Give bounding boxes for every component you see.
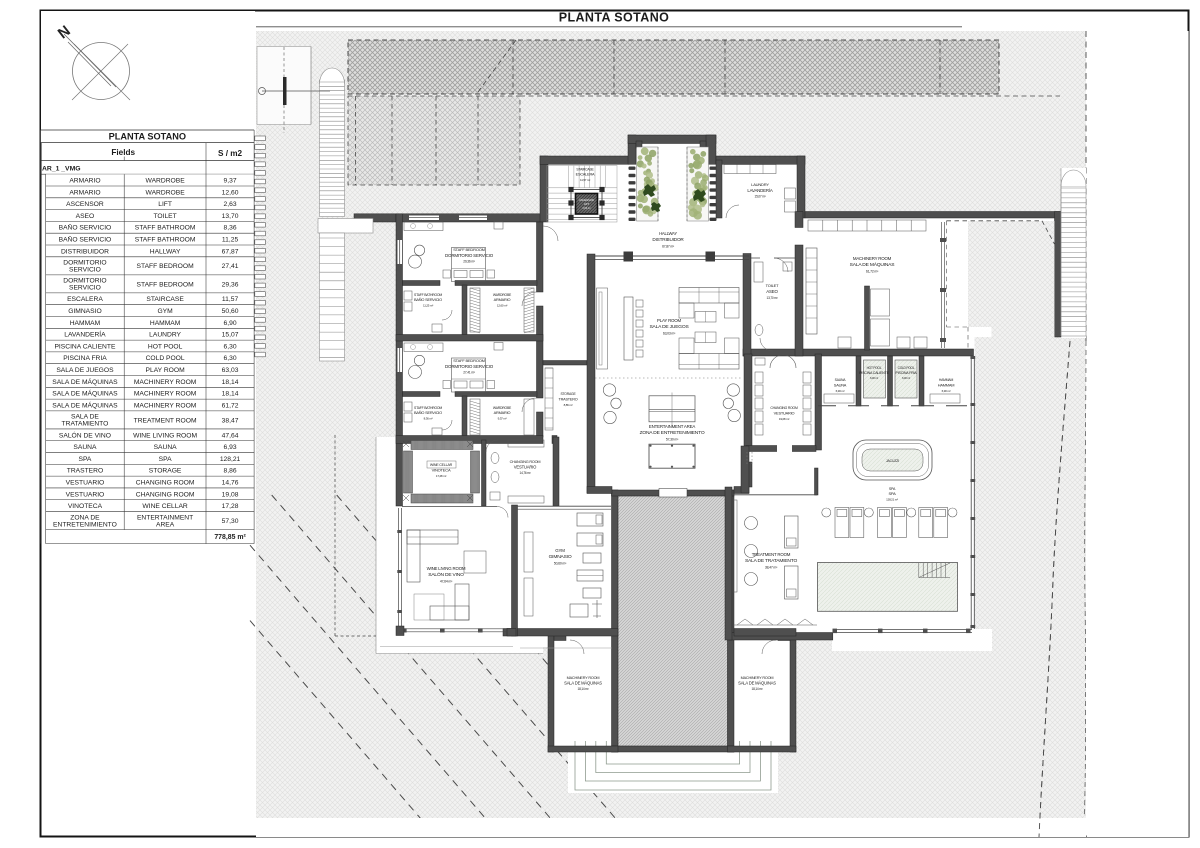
svg-text:STAFF BEDROOM: STAFF BEDROOM	[137, 281, 195, 288]
svg-text:VESTUARIO: VESTUARIO	[66, 479, 105, 486]
svg-text:128,21 m²: 128,21 m²	[886, 497, 898, 501]
svg-text:47,64: 47,64	[222, 432, 239, 439]
svg-text:2,63 m²: 2,63 m²	[582, 207, 590, 210]
svg-text:SALA DE JUEGOS: SALA DE JUEGOS	[56, 367, 114, 374]
svg-text:ESCALERA: ESCALERA	[67, 296, 103, 303]
svg-text:STAIRCASE: STAIRCASE	[146, 296, 184, 303]
svg-text:AR_1 _VMG: AR_1 _VMG	[42, 166, 81, 173]
svg-text:LAUNDRY: LAUNDRY	[149, 332, 181, 339]
svg-text:778,85 m²: 778,85 m²	[214, 534, 246, 541]
svg-text:SAUNA: SAUNA	[73, 444, 97, 451]
svg-text:PISCINA FRIA: PISCINA FRIA	[896, 371, 918, 375]
svg-text:SALA DE MÁQUINAS: SALA DE MÁQUINAS	[738, 680, 776, 685]
svg-text:50,60: 50,60	[222, 308, 239, 315]
svg-text:ASEO: ASEO	[766, 289, 778, 294]
svg-text:19,08 m²: 19,08 m²	[779, 417, 789, 421]
svg-text:PISCINA CALIENTE: PISCINA CALIENTE	[54, 343, 115, 350]
svg-text:11,25: 11,25	[222, 237, 239, 244]
svg-text:6,93: 6,93	[224, 444, 237, 451]
svg-text:COLD POOL: COLD POOL	[146, 355, 185, 362]
svg-text:SAUNA: SAUNA	[835, 378, 847, 382]
svg-text:MACHINERY ROOM: MACHINERY ROOM	[741, 676, 774, 680]
svg-text:SPA: SPA	[159, 456, 172, 463]
svg-text:38,47: 38,47	[222, 417, 239, 424]
svg-text:HALLWAY: HALLWAY	[150, 248, 181, 255]
svg-text:PISCINA CALIENTE: PISCINA CALIENTE	[859, 371, 889, 375]
svg-text:BAÑO SERVICIO: BAÑO SERVICIO	[414, 297, 442, 302]
svg-text:SALA DE: SALA DE	[71, 414, 99, 421]
svg-text:CHANGING ROOM: CHANGING ROOM	[770, 406, 798, 410]
svg-text:DORMITORIO: DORMITORIO	[63, 278, 106, 285]
svg-text:TOILET: TOILET	[153, 213, 176, 220]
svg-text:11,57: 11,57	[222, 296, 239, 303]
svg-text:AREA: AREA	[156, 521, 175, 528]
svg-text:BAÑO SERVICIO: BAÑO SERVICIO	[414, 410, 442, 415]
svg-text:ESCALERA: ESCALERA	[576, 173, 595, 177]
svg-text:6,30: 6,30	[224, 343, 237, 350]
svg-text:12,60 m²: 12,60 m²	[497, 303, 507, 307]
svg-text:SPA: SPA	[888, 491, 896, 496]
svg-text:SALA DE MÁQUINAS: SALA DE MÁQUINAS	[52, 389, 118, 398]
svg-text:STAIRCASE: STAIRCASE	[576, 168, 594, 172]
svg-text:6,30 m²: 6,30 m²	[902, 376, 910, 380]
svg-text:SALÓN DE VINO: SALÓN DE VINO	[428, 571, 464, 578]
svg-text:29,36: 29,36	[222, 281, 239, 288]
svg-text:TREATMENT ROOM: TREATMENT ROOM	[752, 552, 791, 557]
svg-text:VESTUARIO: VESTUARIO	[774, 410, 795, 415]
svg-text:MACHINERY ROOM: MACHINERY ROOM	[134, 391, 197, 398]
svg-text:WINE LIVING ROOM: WINE LIVING ROOM	[133, 432, 197, 439]
svg-text:18,14 m²: 18,14 m²	[752, 687, 763, 691]
svg-text:63,03 m²: 63,03 m²	[663, 331, 676, 335]
svg-text:6,90 m²: 6,90 m²	[942, 389, 951, 393]
svg-text:STORAGE: STORAGE	[149, 468, 182, 475]
svg-text:TRASTERO: TRASTERO	[67, 468, 103, 475]
svg-text:DORMITORIO SERVICIO: DORMITORIO SERVICIO	[445, 364, 494, 369]
svg-text:SALA DE MÁQUINAS: SALA DE MÁQUINAS	[52, 400, 118, 409]
svg-text:13,70 m²: 13,70 m²	[767, 296, 778, 300]
svg-text:VINOTECA: VINOTECA	[68, 503, 103, 510]
svg-text:PLAY ROOM: PLAY ROOM	[657, 318, 681, 323]
svg-text:LIFT: LIFT	[584, 202, 590, 206]
svg-text:47,64 m²: 47,64 m²	[440, 579, 453, 583]
svg-text:JACUZZI: JACUZZI	[886, 459, 899, 463]
svg-text:61,72: 61,72	[222, 402, 239, 409]
svg-text:DORMITORIO: DORMITORIO	[63, 260, 106, 267]
svg-text:WARDROBE: WARDROBE	[146, 178, 186, 185]
svg-text:57,30 m²: 57,30 m²	[666, 437, 679, 441]
svg-text:STAFF BATHROOM: STAFF BATHROOM	[135, 237, 196, 244]
svg-text:HAMMAM: HAMMAM	[939, 378, 954, 382]
svg-text:8,86 m²: 8,86 m²	[564, 403, 573, 407]
svg-text:57,30: 57,30	[222, 518, 239, 525]
svg-text:12,60: 12,60	[222, 189, 239, 196]
svg-text:ASCENSOR: ASCENSOR	[66, 201, 104, 208]
svg-text:STORAGE: STORAGE	[560, 392, 576, 396]
svg-text:PLANTA SOTANO: PLANTA SOTANO	[109, 132, 186, 142]
svg-text:LIFT: LIFT	[158, 201, 172, 208]
svg-text:18,14 m²: 18,14 m²	[578, 687, 589, 691]
svg-text:HALLWAY: HALLWAY	[659, 231, 677, 236]
svg-text:63,03: 63,03	[222, 367, 239, 374]
svg-text:ZONA DE: ZONA DE	[70, 514, 100, 521]
svg-text:STAFF BEDROOM: STAFF BEDROOM	[137, 263, 195, 270]
svg-text:8,86: 8,86	[224, 468, 237, 475]
svg-text:SAUNA: SAUNA	[834, 382, 847, 387]
svg-text:ASEO: ASEO	[76, 213, 95, 220]
svg-text:HOT POOL: HOT POOL	[148, 343, 183, 350]
svg-text:S / m2: S / m2	[218, 149, 243, 158]
svg-text:6,90: 6,90	[224, 320, 237, 327]
svg-text:SALA DE JUEGOS: SALA DE JUEGOS	[649, 324, 689, 330]
svg-text:ZONA DE ENTRETENIMIENTO: ZONA DE ENTRETENIMIENTO	[640, 430, 705, 436]
svg-text:6,93 m²: 6,93 m²	[836, 389, 845, 393]
svg-text:GYM: GYM	[157, 308, 173, 315]
svg-text:ENTRETENIMIENTO: ENTRETENIMIENTO	[53, 521, 117, 528]
svg-text:VESTUARIO: VESTUARIO	[514, 464, 537, 469]
svg-text:VESTUARIO: VESTUARIO	[66, 491, 105, 498]
svg-text:WINE LIVING ROOM: WINE LIVING ROOM	[427, 566, 466, 571]
svg-text:CHANGING ROOM: CHANGING ROOM	[510, 460, 541, 464]
svg-text:13,70: 13,70	[222, 213, 239, 220]
svg-text:29,36 m²: 29,36 m²	[463, 260, 476, 264]
svg-text:MACHINERY ROOM: MACHINERY ROOM	[134, 402, 197, 409]
svg-text:GIMNASIO: GIMNASIO	[68, 308, 101, 315]
svg-text:HOT POOL: HOT POOL	[867, 366, 882, 370]
svg-text:14,76: 14,76	[222, 479, 239, 486]
svg-text:WARDROBE: WARDROBE	[146, 189, 186, 196]
svg-text:128,21: 128,21	[220, 456, 241, 463]
svg-text:9,37 m²: 9,37 m²	[498, 416, 507, 420]
svg-text:8,36: 8,36	[224, 225, 237, 232]
svg-text:COLD POOL: COLD POOL	[898, 366, 915, 370]
svg-text:BAÑO SERVICIO: BAÑO SERVICIO	[59, 235, 112, 244]
svg-text:67,87 m²: 67,87 m²	[662, 244, 675, 248]
svg-text:15,07: 15,07	[222, 332, 239, 339]
svg-text:STAFF BEDROOM: STAFF BEDROOM	[453, 358, 485, 363]
svg-text:HAMMAM: HAMMAM	[938, 382, 955, 387]
svg-text:DORMITORIO SERVICIO: DORMITORIO SERVICIO	[445, 253, 494, 258]
svg-text:27,41: 27,41	[222, 263, 239, 270]
svg-text:6,30 m²: 6,30 m²	[870, 376, 878, 380]
svg-text:14,76 m²: 14,76 m²	[520, 471, 531, 475]
svg-text:LAVANDERÍA: LAVANDERÍA	[747, 188, 772, 193]
svg-text:PLANTA SOTANO: PLANTA SOTANO	[559, 11, 670, 25]
svg-text:MACHINERY ROOM: MACHINERY ROOM	[567, 676, 600, 680]
svg-text:11,25 m²: 11,25 m²	[423, 303, 433, 307]
svg-text:ARMARIO: ARMARIO	[494, 297, 511, 302]
svg-text:17,28: 17,28	[222, 503, 239, 510]
svg-text:SERVICIO: SERVICIO	[69, 267, 101, 274]
svg-text:PLAY ROOM: PLAY ROOM	[146, 367, 186, 374]
svg-text:2,63: 2,63	[224, 201, 237, 208]
svg-text:9,37: 9,37	[224, 178, 237, 185]
svg-text:38,47 m²: 38,47 m²	[765, 565, 778, 569]
svg-text:BAÑO SERVICIO: BAÑO SERVICIO	[59, 223, 112, 232]
svg-text:61,72 m²: 61,72 m²	[866, 269, 879, 273]
svg-text:MACHINERY ROOM: MACHINERY ROOM	[853, 256, 892, 261]
svg-text:Fields: Fields	[111, 148, 135, 157]
svg-text:50,60 m²: 50,60 m²	[554, 561, 567, 565]
svg-text:19,08: 19,08	[222, 491, 239, 498]
svg-text:SALÓN DE VINO: SALÓN DE VINO	[59, 430, 111, 439]
svg-text:ASCENSOR: ASCENSOR	[579, 198, 594, 202]
svg-text:SAUNA: SAUNA	[154, 444, 178, 451]
svg-text:67,87: 67,87	[222, 248, 239, 255]
svg-text:DISTRIBUIDOR: DISTRIBUIDOR	[652, 237, 684, 242]
svg-text:ARMARIO: ARMARIO	[494, 410, 511, 415]
svg-text:DISTRIBUIDOR: DISTRIBUIDOR	[61, 248, 109, 255]
svg-text:SERVICIO: SERVICIO	[69, 285, 101, 292]
svg-text:17,28 m²: 17,28 m²	[436, 474, 446, 478]
svg-text:GIMNASIO: GIMNASIO	[549, 554, 572, 560]
svg-text:TRASTERO: TRASTERO	[558, 397, 577, 401]
svg-text:15,07 m²: 15,07 m²	[755, 195, 766, 199]
svg-text:PISCINA FRIA: PISCINA FRIA	[63, 355, 107, 362]
svg-text:ENTERTAINMENT: ENTERTAINMENT	[137, 514, 193, 521]
svg-text:TRATAMIENTO: TRATAMIENTO	[62, 421, 109, 428]
svg-text:HAMMAM: HAMMAM	[150, 320, 181, 327]
svg-text:WINE CELLAR: WINE CELLAR	[430, 463, 453, 467]
svg-text:SALA DE MÁQUINAS: SALA DE MÁQUINAS	[850, 261, 896, 268]
svg-text:SALA DE TRATAMIENTO: SALA DE TRATAMIENTO	[745, 558, 797, 564]
svg-text:6,30: 6,30	[224, 355, 237, 362]
svg-text:8,36 m²: 8,36 m²	[424, 416, 433, 420]
svg-text:27,41 m²: 27,41 m²	[463, 371, 476, 375]
svg-text:11,57 m²: 11,57 m²	[580, 178, 590, 182]
svg-text:STAFF BATHROOM: STAFF BATHROOM	[135, 225, 196, 232]
svg-text:LAVANDERÍA: LAVANDERÍA	[64, 330, 106, 339]
svg-text:HAMMAM: HAMMAM	[70, 320, 101, 327]
svg-text:LAUNDRY: LAUNDRY	[751, 182, 769, 187]
svg-text:SPA: SPA	[79, 456, 92, 463]
svg-text:SALA DE MÁQUINAS: SALA DE MÁQUINAS	[52, 377, 118, 386]
svg-text:CHANGING ROOM: CHANGING ROOM	[136, 479, 195, 486]
svg-text:TREATMENT ROOM: TREATMENT ROOM	[134, 417, 197, 424]
svg-text:TOILET: TOILET	[766, 283, 779, 288]
svg-text:18,14: 18,14	[222, 379, 239, 386]
svg-text:SALA DE MÁQUINAS: SALA DE MÁQUINAS	[564, 680, 602, 685]
svg-text:WINE CELLAR: WINE CELLAR	[142, 503, 188, 510]
svg-text:ARMARIO: ARMARIO	[69, 178, 100, 185]
svg-text:CHANGING ROOM: CHANGING ROOM	[136, 491, 195, 498]
svg-text:GYM: GYM	[555, 548, 565, 553]
svg-text:18,14: 18,14	[222, 391, 239, 398]
svg-text:ARMARIO: ARMARIO	[69, 189, 100, 196]
svg-text:MACHINERY ROOM: MACHINERY ROOM	[134, 379, 197, 386]
